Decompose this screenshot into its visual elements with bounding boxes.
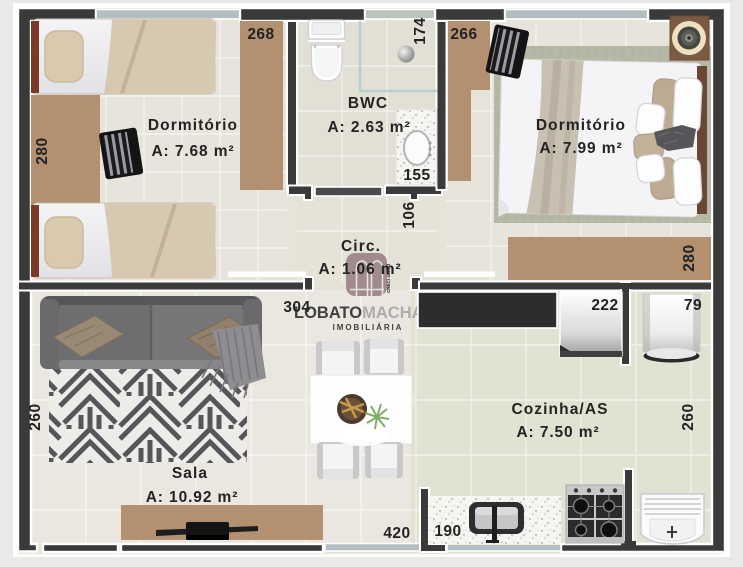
svg-text:106: 106 <box>401 201 418 228</box>
svg-text:IMOBILIÁRIA: IMOBILIÁRIA <box>333 323 404 332</box>
svg-text:280: 280 <box>681 244 698 271</box>
svg-text:A: 2.63 m²: A: 2.63 m² <box>327 119 410 136</box>
svg-text:266: 266 <box>450 26 477 43</box>
svg-text:260: 260 <box>680 403 697 430</box>
svg-text:A: 7.99 m²: A: 7.99 m² <box>539 140 622 157</box>
svg-text:BWC: BWC <box>348 95 388 112</box>
svg-text:Cozinha/AS: Cozinha/AS <box>511 401 608 418</box>
svg-text:222: 222 <box>591 297 618 314</box>
svg-text:304: 304 <box>283 299 310 316</box>
svg-text:Sala: Sala <box>172 465 208 482</box>
svg-text:A: 10.92 m²: A: 10.92 m² <box>146 489 239 506</box>
svg-text:A: 7.50 m²: A: 7.50 m² <box>516 424 599 441</box>
svg-text:420: 420 <box>383 525 410 542</box>
svg-text:190: 190 <box>434 523 461 540</box>
svg-text:Dormitório: Dormitório <box>148 117 238 134</box>
svg-text:174: 174 <box>412 17 429 44</box>
svg-text:155: 155 <box>403 167 430 184</box>
svg-text:79: 79 <box>684 297 702 314</box>
svg-text:A: 7.68 m²: A: 7.68 m² <box>151 143 234 160</box>
svg-text:Dormitório: Dormitório <box>536 117 626 134</box>
svg-text:260: 260 <box>27 403 44 430</box>
svg-text:268: 268 <box>247 26 274 43</box>
svg-text:A: 1.06 m²: A: 1.06 m² <box>318 261 401 278</box>
svg-text:Circ.: Circ. <box>341 238 381 255</box>
svg-text:280: 280 <box>34 137 51 164</box>
